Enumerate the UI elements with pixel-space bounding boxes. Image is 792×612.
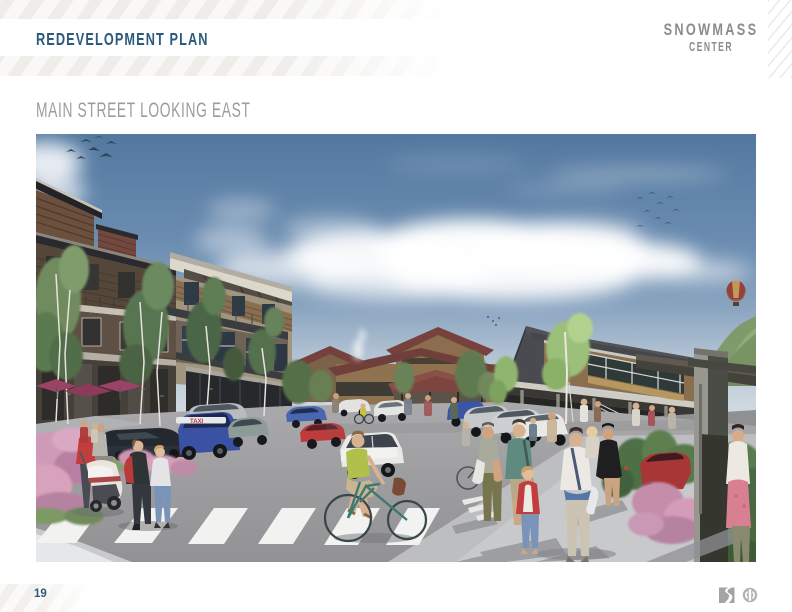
svg-text:TAXI: TAXI	[190, 419, 204, 425]
